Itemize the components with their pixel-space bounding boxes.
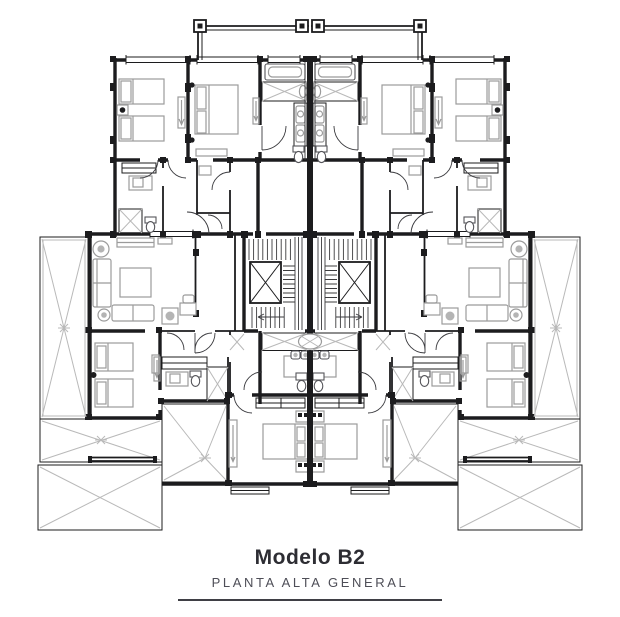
floor-plan-svg <box>0 0 620 540</box>
plan-title: Modelo B2 <box>0 546 620 570</box>
title-block: Modelo B2 PLANTA ALTA GENERAL <box>0 546 620 601</box>
plan-left-half <box>38 20 310 530</box>
caption-rule <box>178 599 442 601</box>
floor-plan-drawing <box>0 0 620 540</box>
plan-right-half-mirrored <box>310 20 582 530</box>
plan-subtitle: PLANTA ALTA GENERAL <box>0 575 620 590</box>
